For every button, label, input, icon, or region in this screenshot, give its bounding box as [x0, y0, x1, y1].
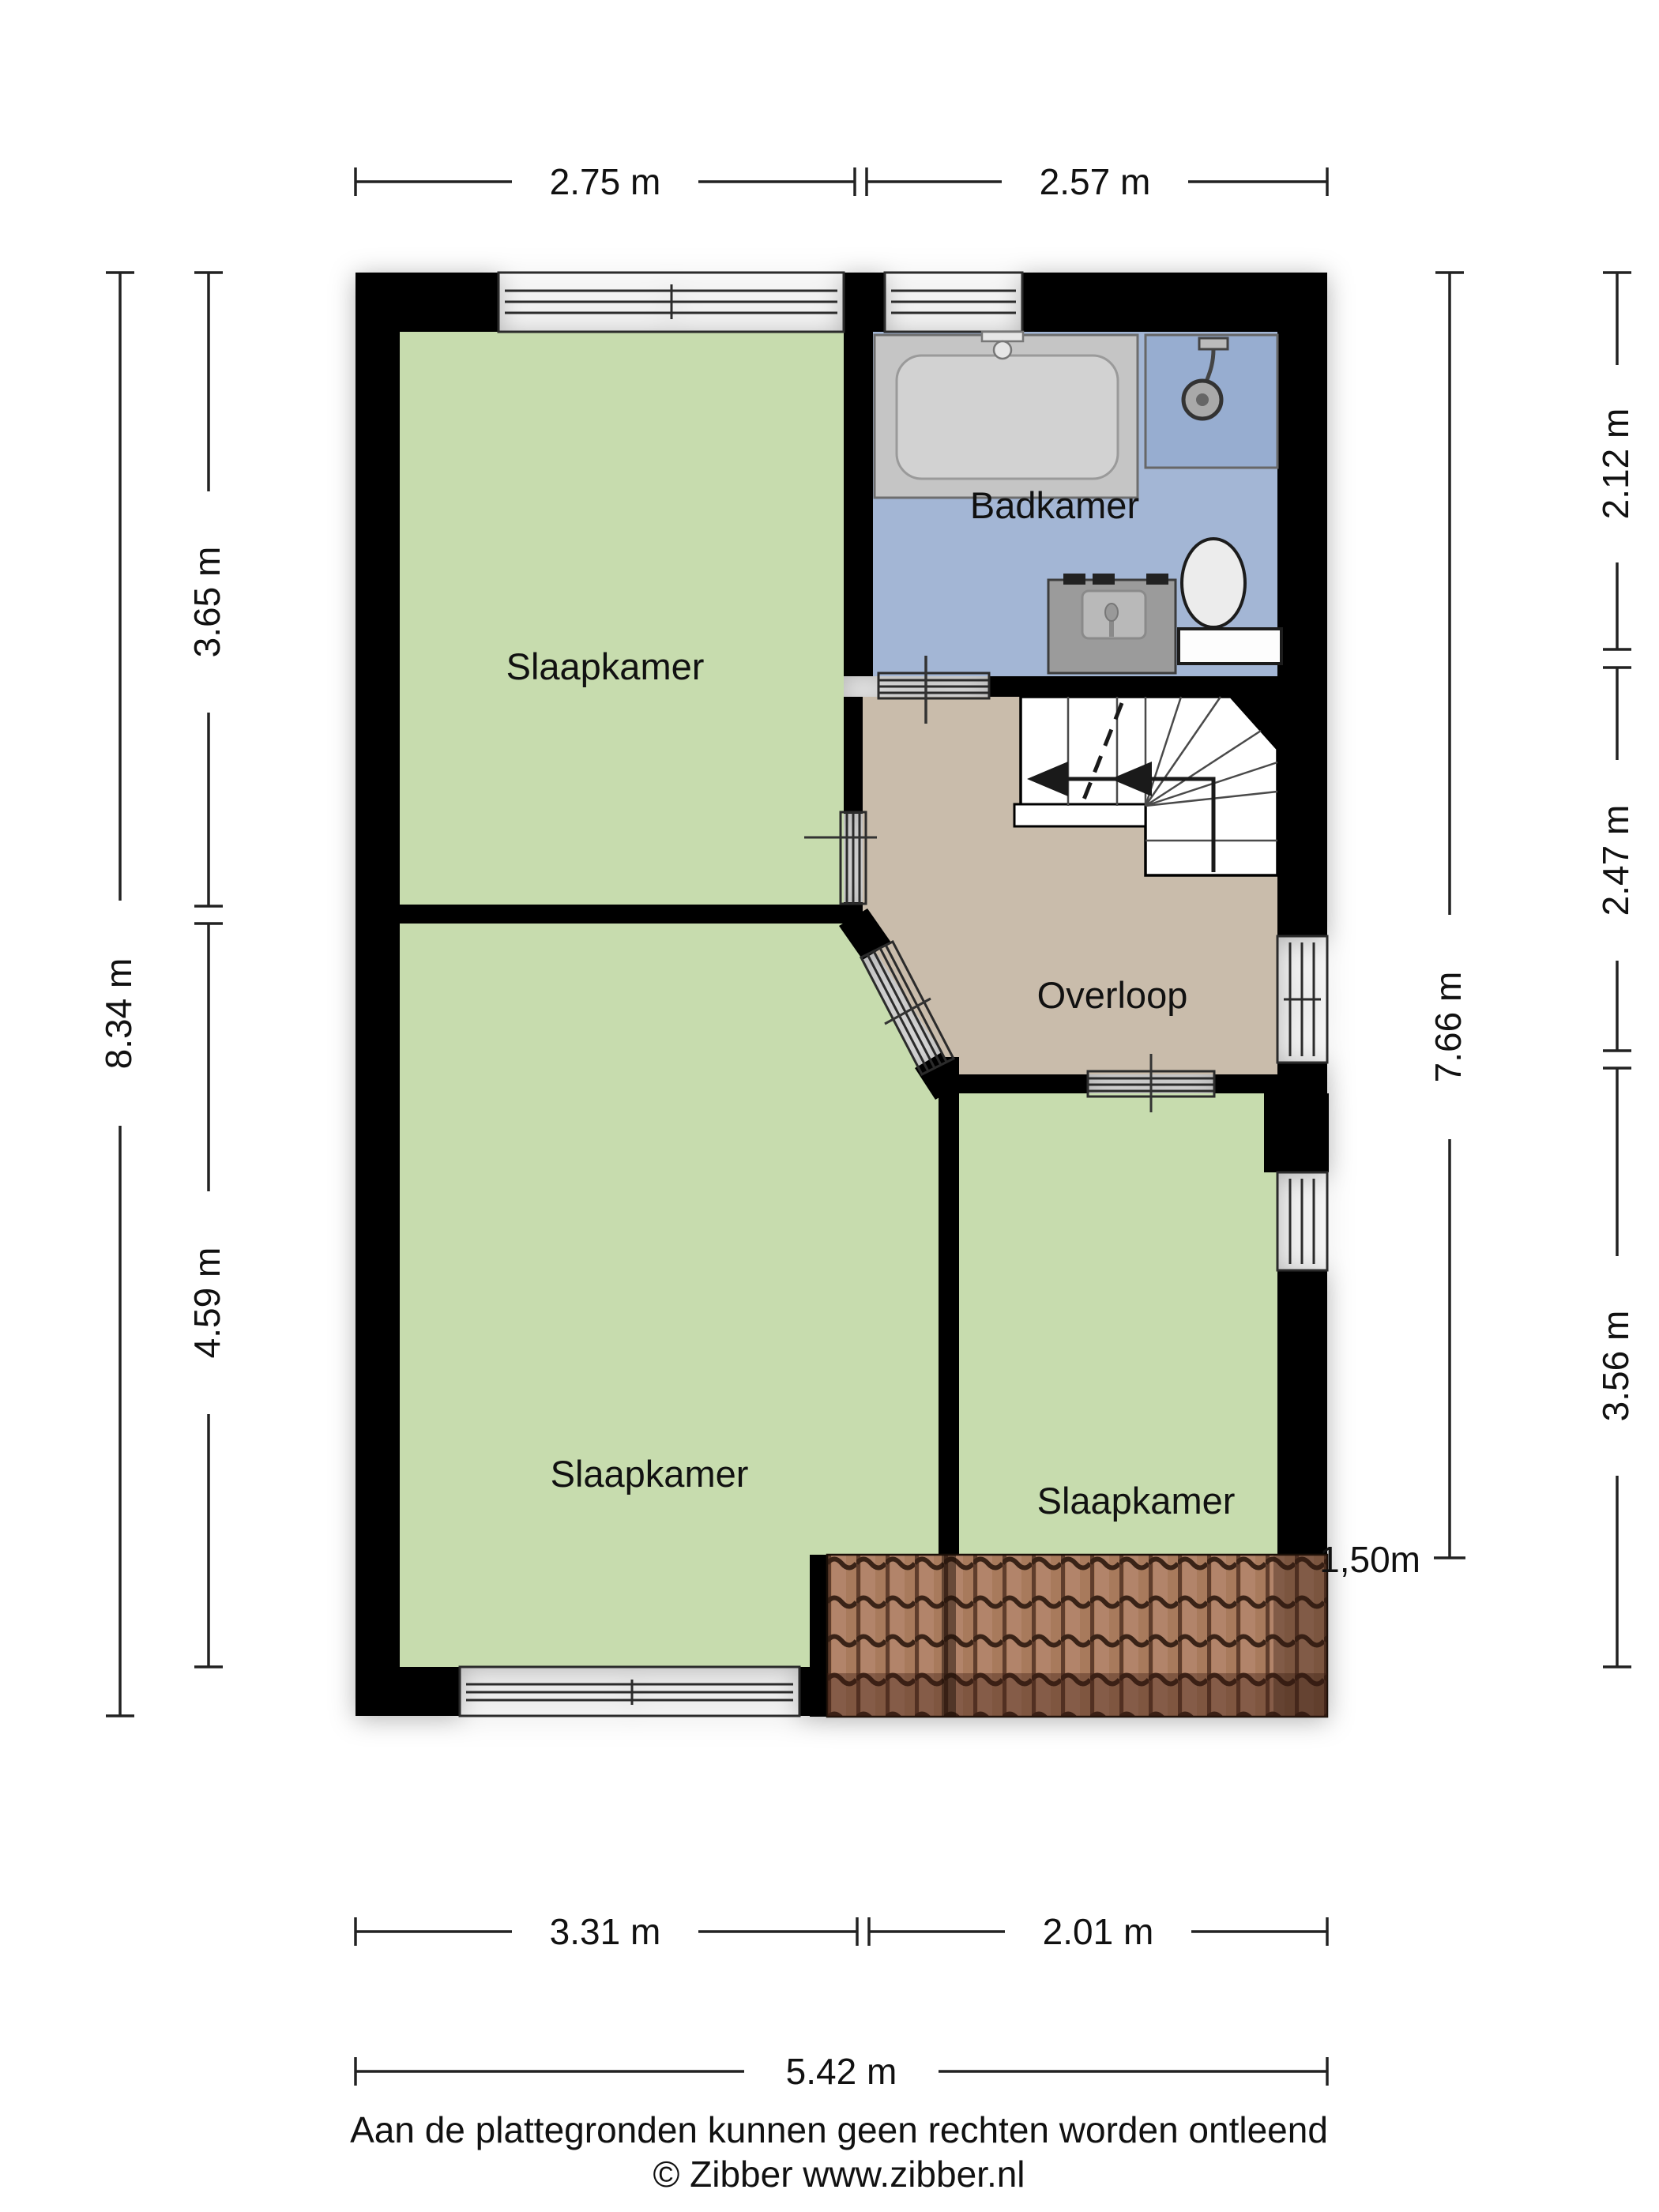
wall-segment	[1277, 1270, 1327, 1555]
wall-segment	[355, 1667, 460, 1716]
dim-top-left-label: 2.75 m	[550, 161, 661, 202]
wall-segment	[1277, 1063, 1327, 1094]
knee-wall-height-label: 1,50m	[1319, 1539, 1420, 1580]
wall-segment	[1022, 273, 1327, 332]
wall-segment	[844, 332, 873, 676]
wall-segment	[844, 273, 885, 332]
dim-top-right-label: 2.57 m	[1040, 161, 1151, 202]
dim-bottom-left-label: 3.31 m	[550, 1911, 661, 1952]
dim-right-lower-label: 3.56 m	[1595, 1311, 1636, 1422]
dim-top-left: 2.75 m	[355, 161, 855, 202]
dim-bottom-left: 3.31 m	[355, 1911, 857, 1952]
dim-bottom-right: 2.01 m	[869, 1911, 1327, 1952]
wall-segment	[844, 697, 863, 814]
roof-tiles	[827, 1555, 1327, 1717]
window-top-bathroom	[885, 273, 1022, 332]
dim-right-upper: 2.12 m	[1595, 273, 1636, 649]
sink-icon	[1048, 574, 1176, 673]
wall-segment	[1214, 1074, 1277, 1093]
room-label-bedroom-bottom-left: Slaapkamer	[551, 1453, 749, 1495]
footer-disclaimer: Aan de plattegronden kunnen geen rechten…	[350, 2109, 1328, 2150]
wall-segment	[989, 676, 1277, 697]
floorplan-svg: Slaapkamer Badkamer Overloop Slaapkamer …	[0, 0, 1659, 2212]
dim-right-inner: 7.66 m	[1428, 273, 1469, 1558]
stair-bottom-step	[1014, 804, 1145, 826]
dim-left-total: 8.34 m	[98, 273, 139, 1716]
dim-bottom-right-label: 2.01 m	[1043, 1911, 1154, 1952]
wall-segment	[400, 905, 844, 924]
shower-icon	[1145, 335, 1277, 468]
dim-left-upper-label: 3.65 m	[186, 547, 228, 658]
room-label-bedroom-bottom-right: Slaapkamer	[1037, 1480, 1236, 1522]
dim-right-inner-label: 7.66 m	[1428, 972, 1469, 1083]
wall-segment	[355, 273, 400, 1716]
dim-right-middle: 2.47 m	[1595, 668, 1636, 1051]
dim-left-upper: 3.65 m	[186, 273, 228, 906]
window-right-landing	[1277, 936, 1327, 1063]
footer-copyright: © Zibber www.zibber.nl	[653, 2154, 1025, 2195]
room-bedroom-top-left	[400, 332, 844, 906]
window-top-left	[498, 273, 844, 332]
wall-segment	[1277, 332, 1327, 936]
dim-left-total-label: 8.34 m	[98, 958, 139, 1070]
window-bottom	[460, 1667, 799, 1716]
room-label-bathroom: Badkamer	[970, 484, 1139, 526]
footer: Aan de plattegronden kunnen geen rechten…	[350, 2109, 1328, 2195]
wall-segment	[1264, 1093, 1329, 1172]
dim-bottom-total-label: 5.42 m	[786, 2051, 897, 2092]
dim-left-lower-label: 4.59 m	[186, 1247, 228, 1359]
wall-segment	[959, 1074, 1088, 1093]
room-label-landing: Overloop	[1037, 974, 1188, 1016]
floorplan-page: Slaapkamer Badkamer Overloop Slaapkamer …	[0, 0, 1659, 2212]
dim-top-right: 2.57 m	[867, 161, 1327, 202]
building: Slaapkamer Badkamer Overloop Slaapkamer …	[355, 273, 1329, 1717]
dim-bottom-total: 5.42 m	[355, 2051, 1327, 2092]
wall-segment	[799, 1667, 827, 1716]
dim-right-upper-label: 2.12 m	[1595, 408, 1636, 520]
window-right-bedroom	[1277, 1172, 1327, 1270]
wall-segment	[939, 1057, 959, 1555]
dim-right-middle-label: 2.47 m	[1595, 805, 1636, 916]
dim-right-lower: 3.56 m	[1595, 1068, 1636, 1667]
dim-left-lower: 4.59 m	[186, 924, 228, 1667]
room-label-bedroom-top-left: Slaapkamer	[506, 645, 705, 687]
bathtub-icon	[875, 332, 1138, 498]
